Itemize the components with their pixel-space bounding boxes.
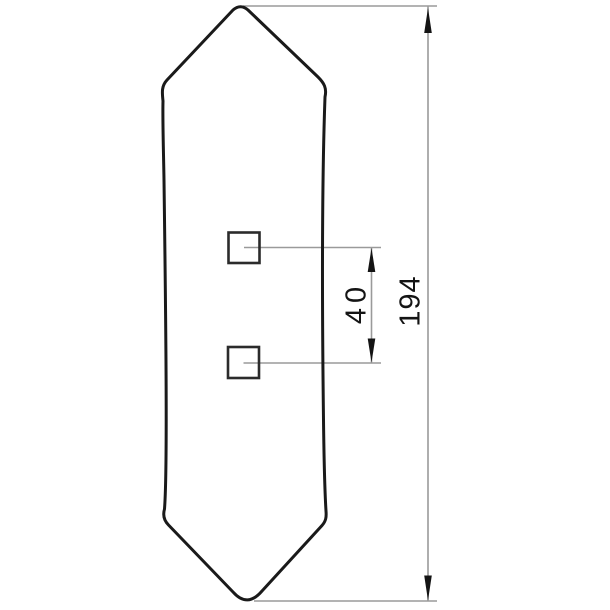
arrow-40-down [368,339,376,363]
technical-drawing: 40 194 [0,0,610,610]
arrow-194-down [424,576,432,601]
blade-outline [162,7,326,600]
arrow-40-up [368,248,376,272]
drawing-svg: 40 194 [0,0,610,610]
dimension-label-40: 40 [341,282,373,324]
dimension-label-194: 194 [395,275,427,326]
arrow-194-up [424,8,432,33]
